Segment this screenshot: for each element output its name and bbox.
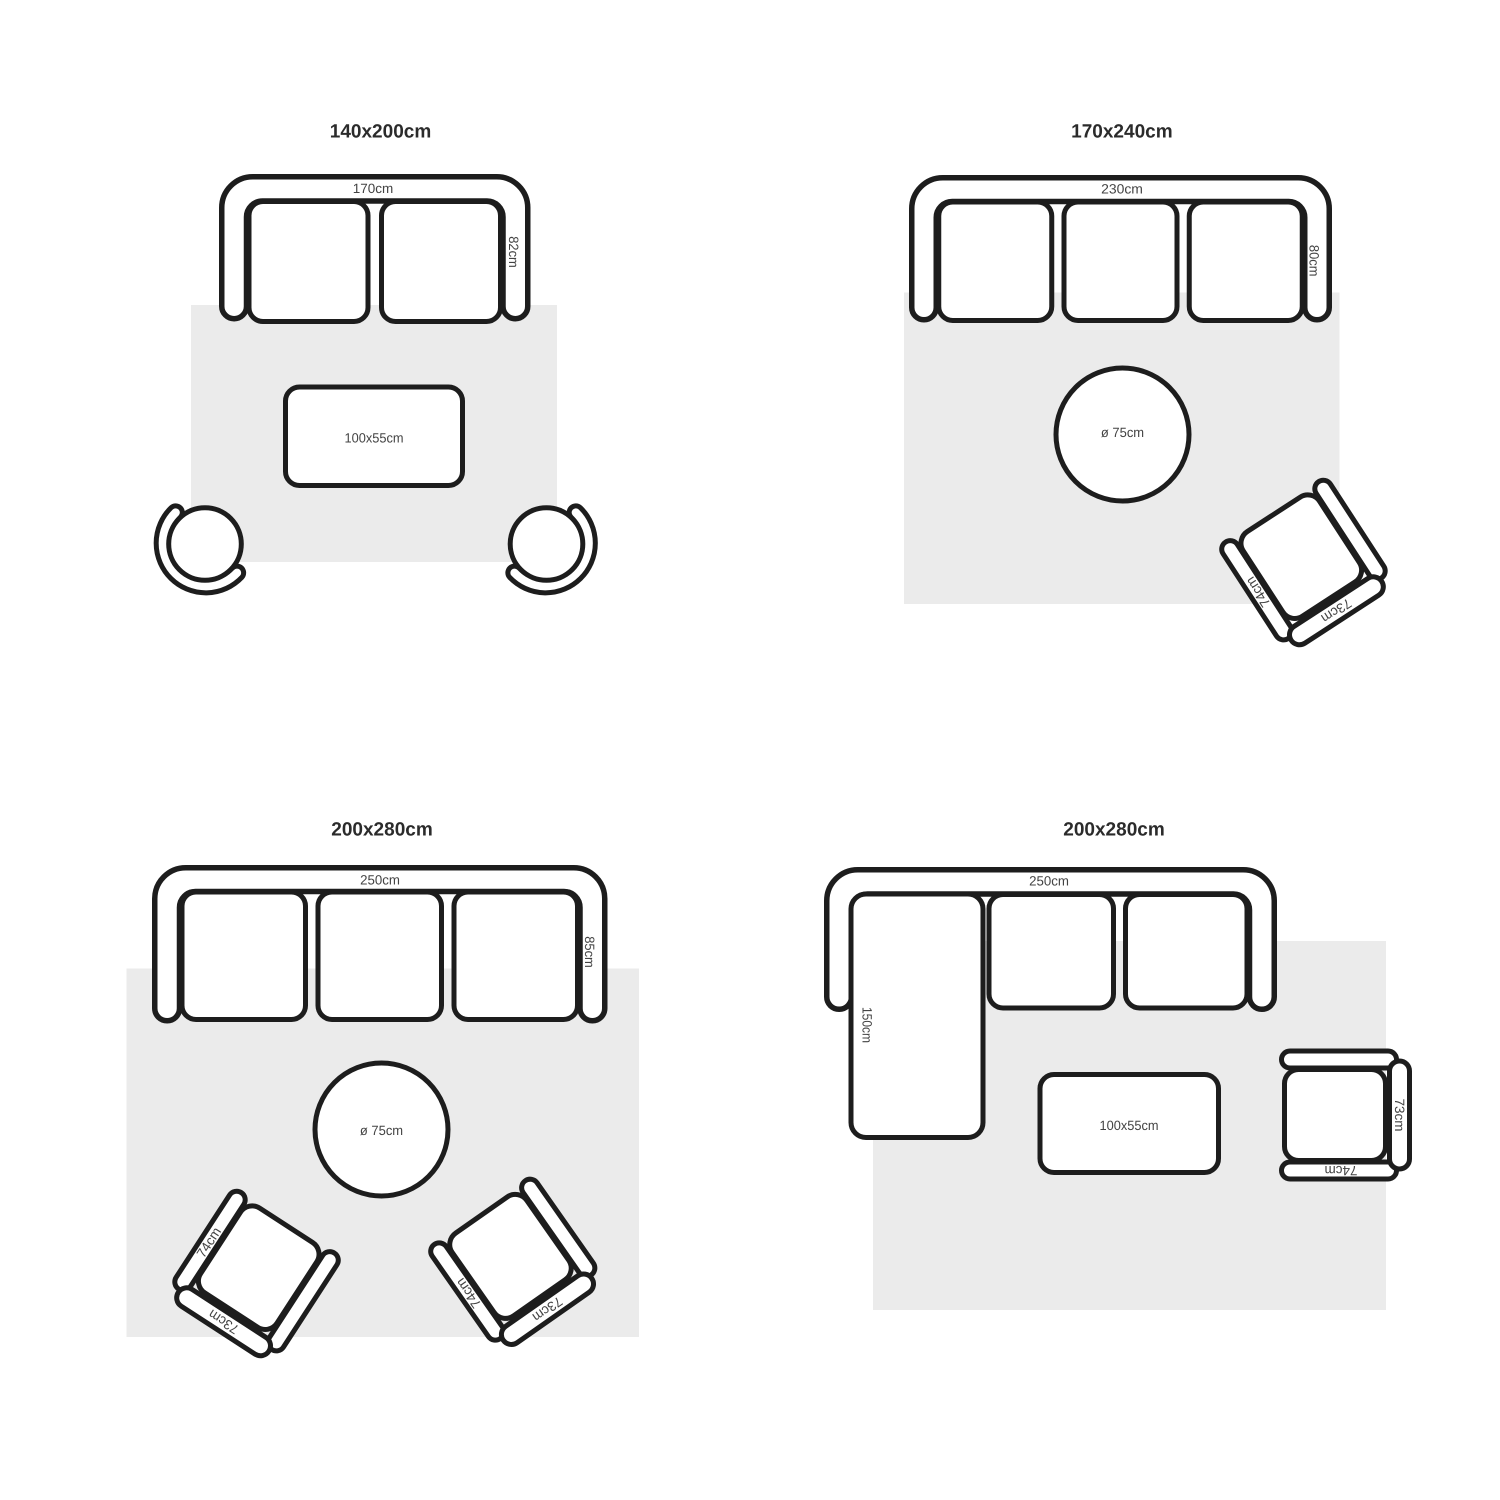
svg-text:250cm: 250cm xyxy=(360,873,400,888)
svg-text:230cm: 230cm xyxy=(1101,182,1143,197)
svg-text:82cm: 82cm xyxy=(506,236,521,268)
svg-text:140x200cm: 140x200cm xyxy=(330,122,432,143)
svg-text:100x55cm: 100x55cm xyxy=(1100,1118,1159,1133)
svg-text:ø 75cm: ø 75cm xyxy=(360,1123,403,1138)
svg-text:80cm: 80cm xyxy=(1307,245,1322,277)
svg-text:85cm: 85cm xyxy=(582,936,597,968)
svg-text:150cm: 150cm xyxy=(860,1007,875,1043)
svg-text:170x240cm: 170x240cm xyxy=(1071,122,1173,143)
svg-text:250cm: 250cm xyxy=(1029,874,1069,889)
svg-text:200x280cm: 200x280cm xyxy=(331,820,433,841)
svg-text:200x280cm: 200x280cm xyxy=(1063,820,1165,841)
svg-text:ø 75cm: ø 75cm xyxy=(1101,425,1144,440)
svg-text:170cm: 170cm xyxy=(353,181,394,196)
svg-text:100x55cm: 100x55cm xyxy=(345,431,404,446)
